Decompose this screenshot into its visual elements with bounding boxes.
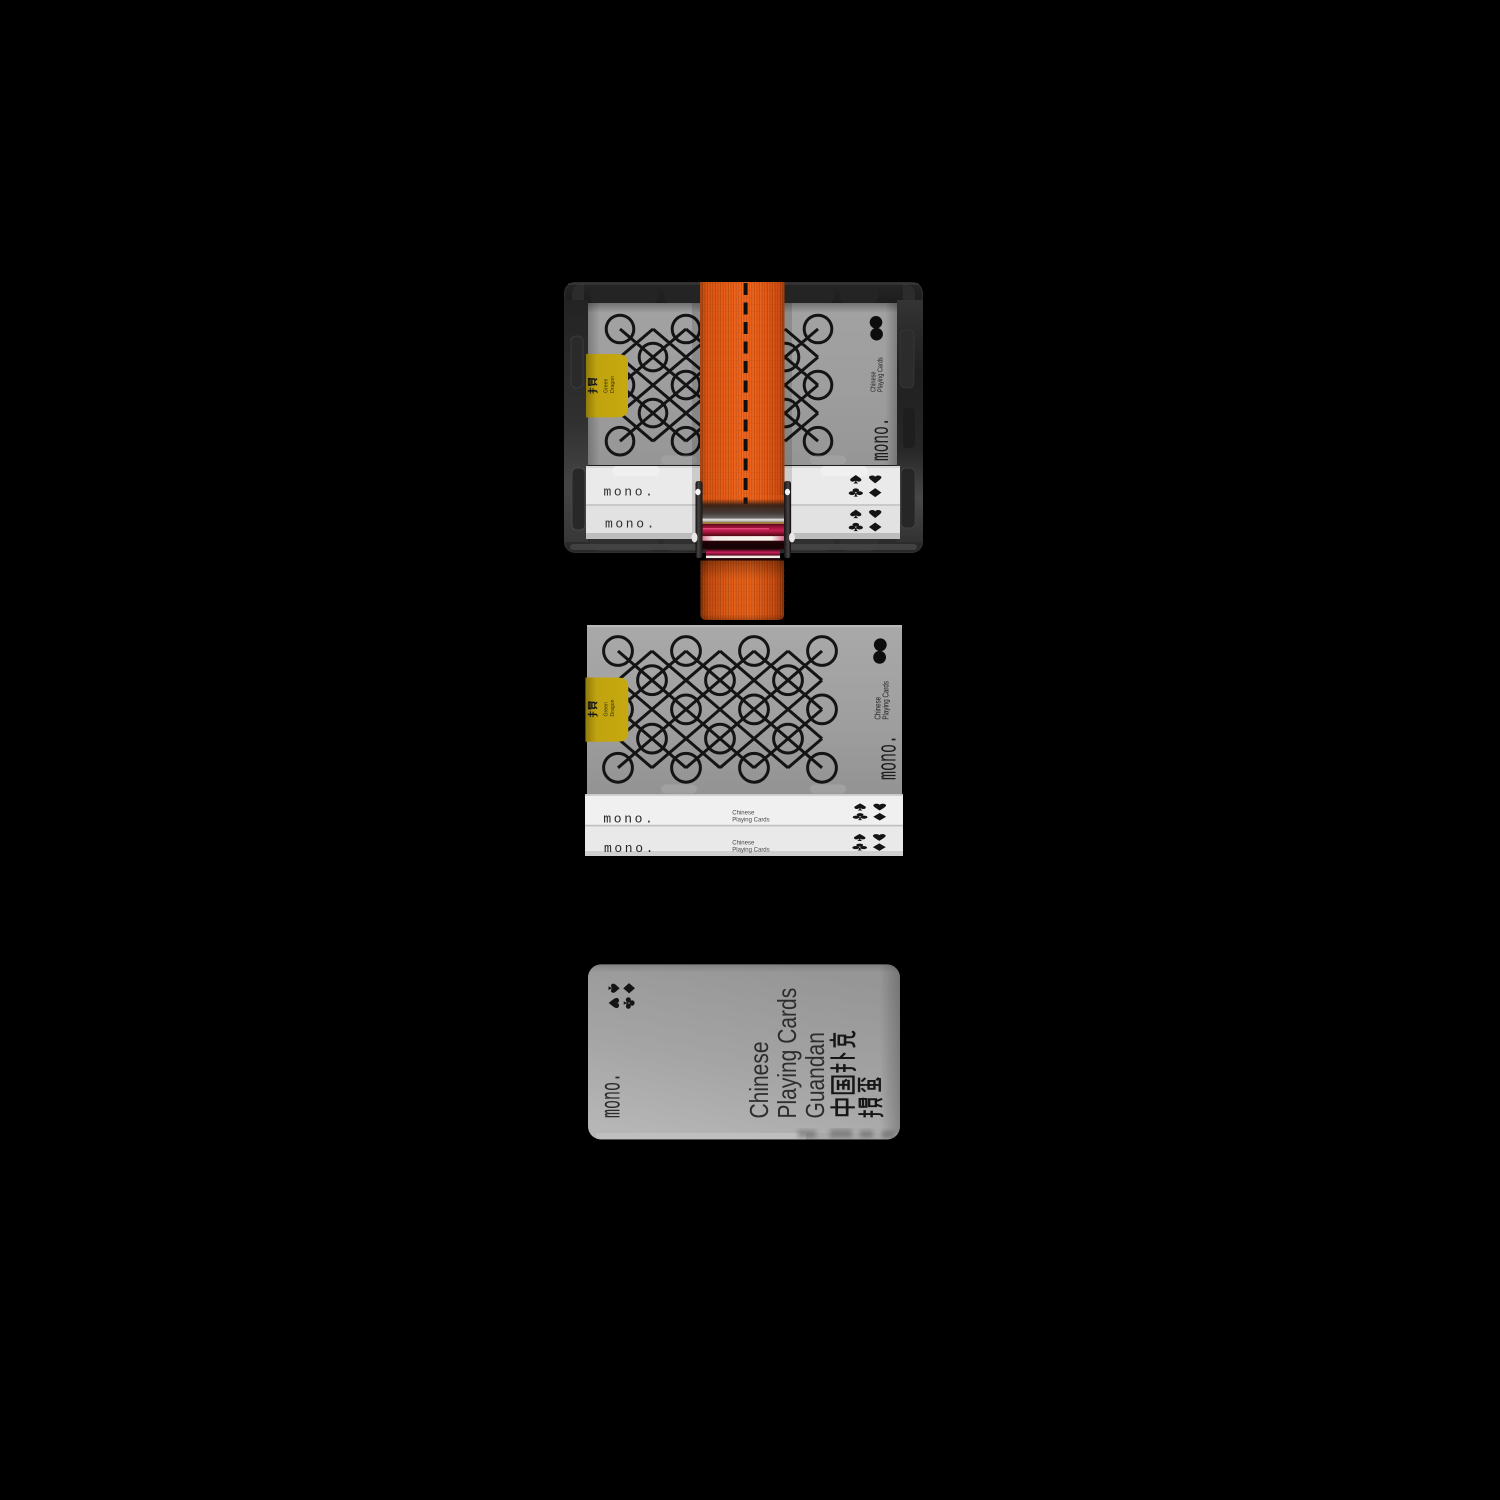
svg-text:Playing Cards: Playing Cards [732,818,769,824]
svg-text:Playing Cards: Playing Cards [732,847,769,853]
svg-text:mono.: mono. [596,1073,628,1118]
svg-text:Playing Cards: Playing Cards [877,357,885,392]
svg-text:Chinese: Chinese [732,811,755,817]
svg-text:Chinese: Chinese [745,1041,775,1118]
svg-text:mono.: mono. [605,517,657,532]
svg-text:mono.: mono. [603,811,655,826]
svg-text:Dragon: Dragon [610,699,616,716]
svg-text:Chinese: Chinese [732,841,755,847]
svg-text:mono.: mono. [868,417,896,461]
svg-text:Green: Green [604,702,610,717]
svg-text:mono.: mono. [604,485,656,500]
svg-text:mono.: mono. [604,841,656,856]
svg-text:Playing Cards: Playing Cards [880,681,890,720]
svg-text:Dragon: Dragon [610,376,616,393]
svg-text:mono.: mono. [875,735,904,780]
svg-text:Playing Cards: Playing Cards [773,988,803,1119]
svg-text:Green: Green [604,378,610,393]
svg-text:Guandan: Guandan [801,1032,831,1118]
